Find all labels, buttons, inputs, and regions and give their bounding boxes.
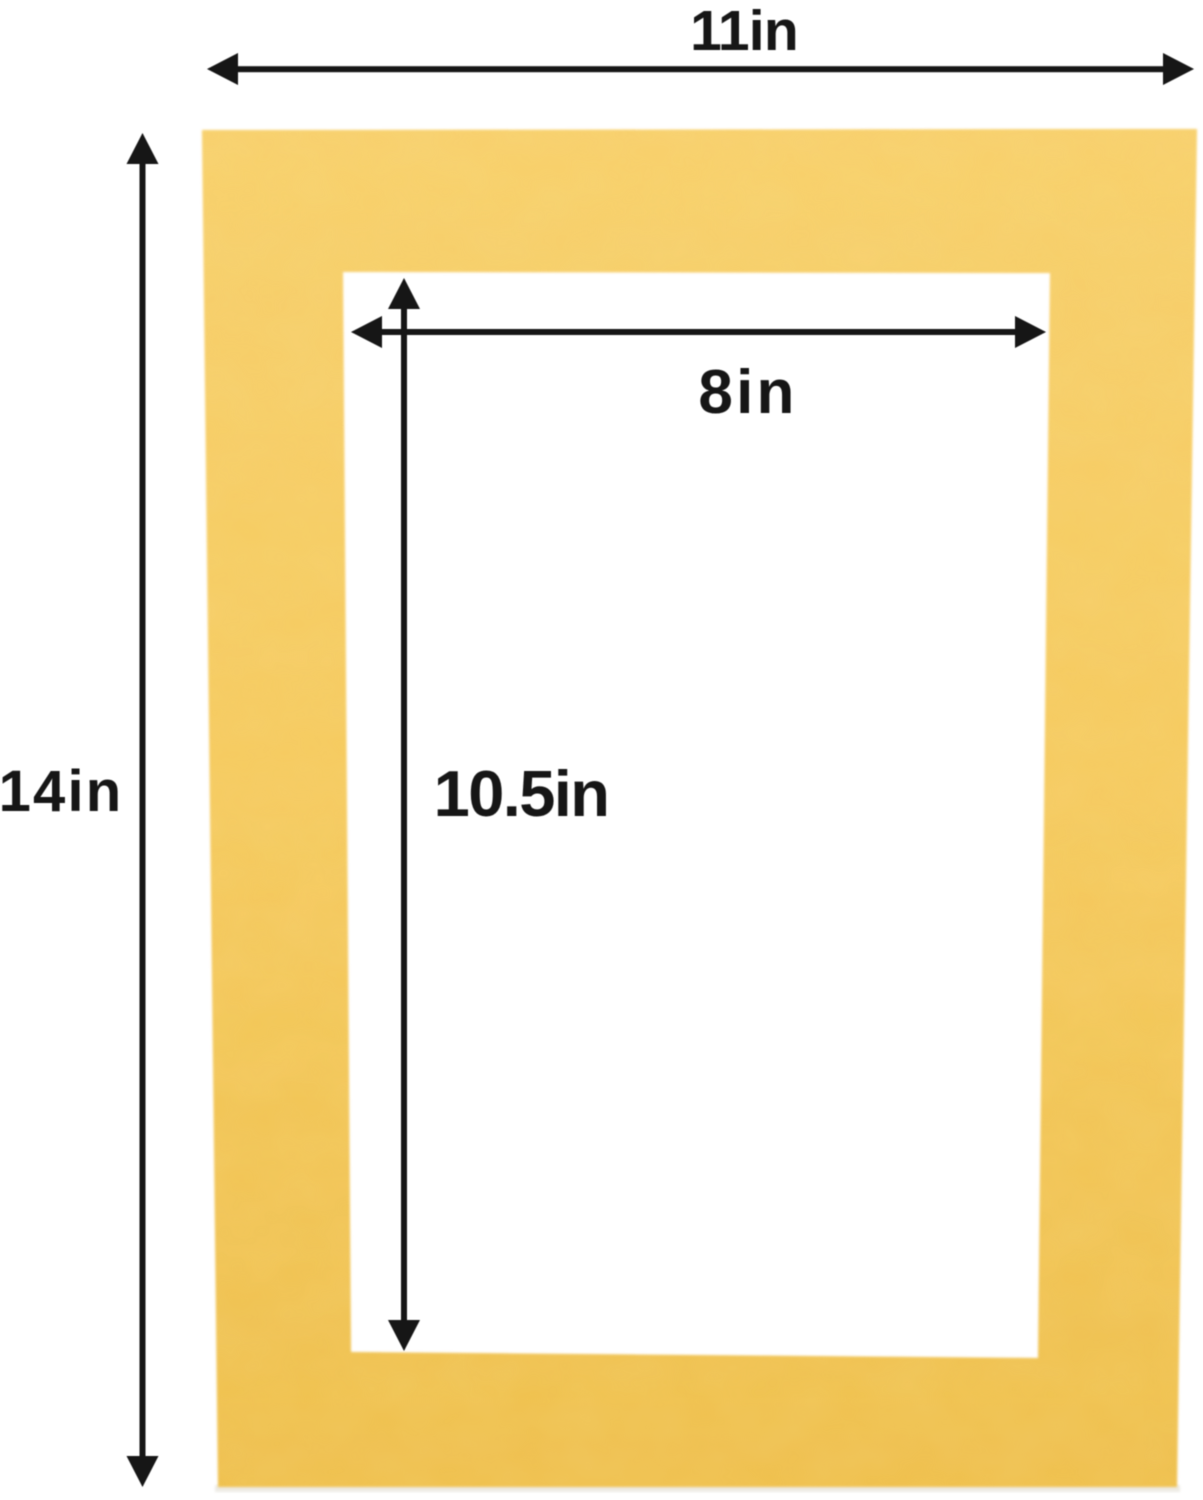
- svg-text:11in: 11in: [690, 0, 798, 63]
- svg-text:10.5in: 10.5in: [434, 757, 609, 830]
- svg-text:14in: 14in: [0, 759, 123, 824]
- svg-text:8in: 8in: [698, 358, 797, 427]
